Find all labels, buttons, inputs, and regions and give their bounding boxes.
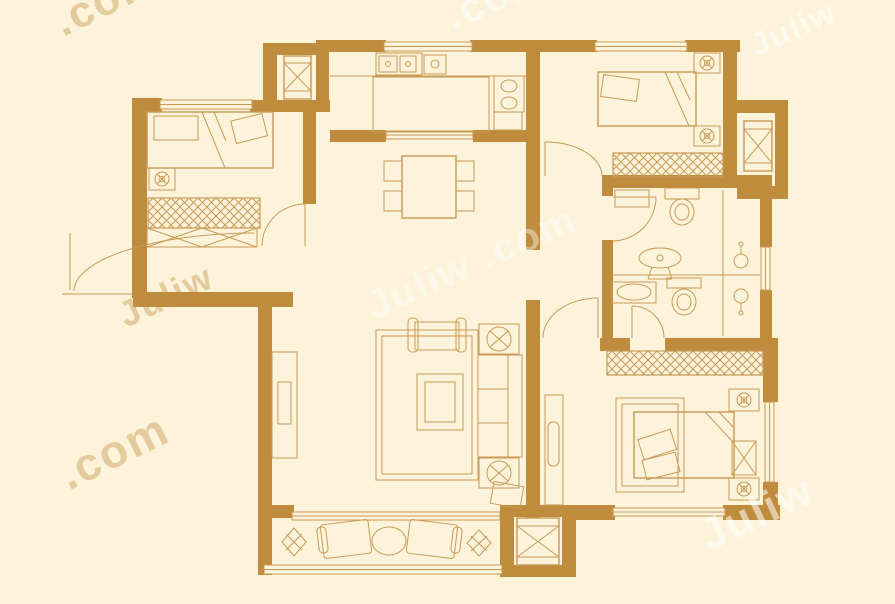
tv-cabinet xyxy=(272,352,297,458)
plant-icon xyxy=(467,530,491,556)
doors xyxy=(62,142,664,338)
sofa xyxy=(478,355,522,457)
bedroom-top-left xyxy=(147,112,273,247)
plant-icon xyxy=(282,528,306,556)
lounge-chair xyxy=(316,519,371,559)
cushion xyxy=(231,113,268,143)
lamp-icon xyxy=(700,56,714,70)
stove xyxy=(494,76,524,130)
tv xyxy=(278,382,291,424)
window-kitchen xyxy=(384,42,472,51)
sliding-door-balcony xyxy=(292,512,500,520)
chair xyxy=(456,161,474,181)
small-appliance xyxy=(424,55,446,74)
bedroom-top-right xyxy=(598,53,723,177)
round-table xyxy=(372,527,406,555)
coffee-table xyxy=(417,374,463,430)
master-bedroom xyxy=(545,351,763,505)
balcony-rail xyxy=(264,565,502,574)
bathroom-upper xyxy=(613,188,760,336)
floor-plan-page: .com .com Juliw Juliw .com xyxy=(0,0,895,604)
door-bathroom-lower xyxy=(632,306,664,338)
chair xyxy=(384,191,402,211)
pillow xyxy=(154,116,198,140)
ac-platform-balcony xyxy=(517,518,559,565)
door-bathroom-upper xyxy=(613,197,656,241)
bedside-stool xyxy=(732,441,756,475)
wardrobe xyxy=(148,198,260,228)
dining-table xyxy=(402,156,456,218)
lamp-icon xyxy=(700,129,714,143)
lounge-chair xyxy=(406,519,462,559)
vanity-basin xyxy=(612,282,656,303)
windows xyxy=(160,42,774,574)
pillow xyxy=(601,75,640,102)
kitchen-counter xyxy=(373,77,489,132)
lamp-icon xyxy=(155,172,169,186)
lamp-icon xyxy=(737,482,751,496)
wall-structure xyxy=(132,40,788,577)
door-bedroom-top-left xyxy=(262,204,305,246)
bathroom-shelf xyxy=(615,190,649,207)
ac-platform-top-right xyxy=(744,121,772,171)
window-bedroom-top-left xyxy=(160,100,252,109)
window-bathroom xyxy=(761,247,770,290)
lamp-icon xyxy=(737,393,751,407)
door-bedroom-top-right xyxy=(545,142,602,176)
window-bedroom-top-right xyxy=(595,42,687,51)
blanket-fold xyxy=(705,412,734,443)
balcony xyxy=(282,519,491,559)
kitchen xyxy=(330,53,526,132)
desk-cabinet xyxy=(545,395,563,505)
shower-head-icon xyxy=(734,289,748,315)
floor-plan-canvas xyxy=(0,0,895,604)
pillow xyxy=(642,452,680,480)
living-room xyxy=(272,318,524,508)
shower-head-icon xyxy=(734,242,748,268)
dining-area xyxy=(384,156,474,218)
side-table xyxy=(479,324,519,354)
chair xyxy=(384,161,402,181)
window-master-south xyxy=(613,508,725,516)
window-master-east xyxy=(765,402,774,482)
chair xyxy=(456,191,474,211)
wardrobe xyxy=(607,351,763,375)
kitchen-sink xyxy=(376,53,422,75)
wash-basin xyxy=(639,248,681,279)
door-master-bedroom xyxy=(543,298,598,338)
wardrobe xyxy=(613,153,723,177)
pouf xyxy=(490,482,523,509)
armchair xyxy=(408,318,466,352)
wardrobe-front xyxy=(147,228,257,247)
side-table xyxy=(479,458,519,488)
duct-shaft-kitchen xyxy=(284,56,311,99)
toilet xyxy=(667,278,701,315)
entry-door-arc xyxy=(62,233,254,294)
pillow xyxy=(638,429,677,459)
toilet xyxy=(665,188,699,225)
